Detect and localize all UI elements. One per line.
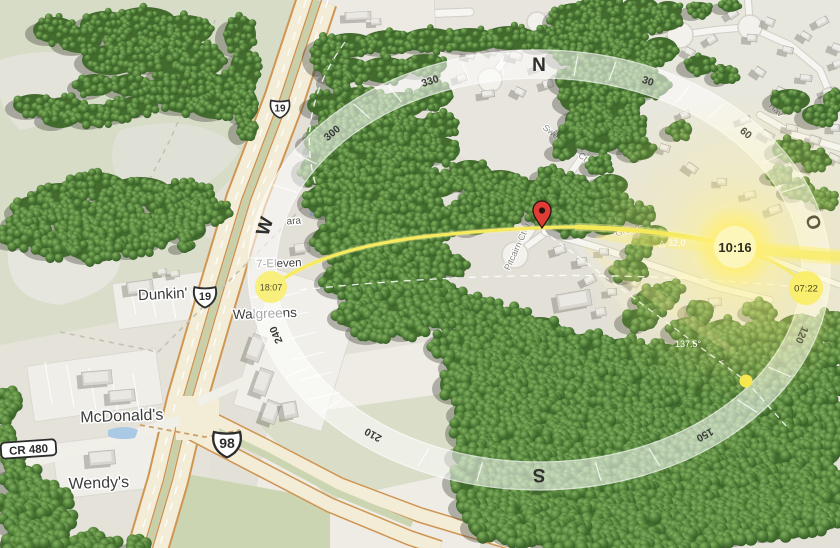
svg-text:Dunkin': Dunkin' [138, 285, 189, 305]
svg-text:McDonald's: McDonald's [80, 407, 164, 427]
svg-text:ara: ara [286, 215, 302, 227]
svg-text:98: 98 [219, 435, 235, 451]
svg-text:19: 19 [274, 104, 286, 115]
svg-text:Wendy's: Wendy's [68, 474, 129, 493]
svg-text:19: 19 [199, 291, 211, 303]
